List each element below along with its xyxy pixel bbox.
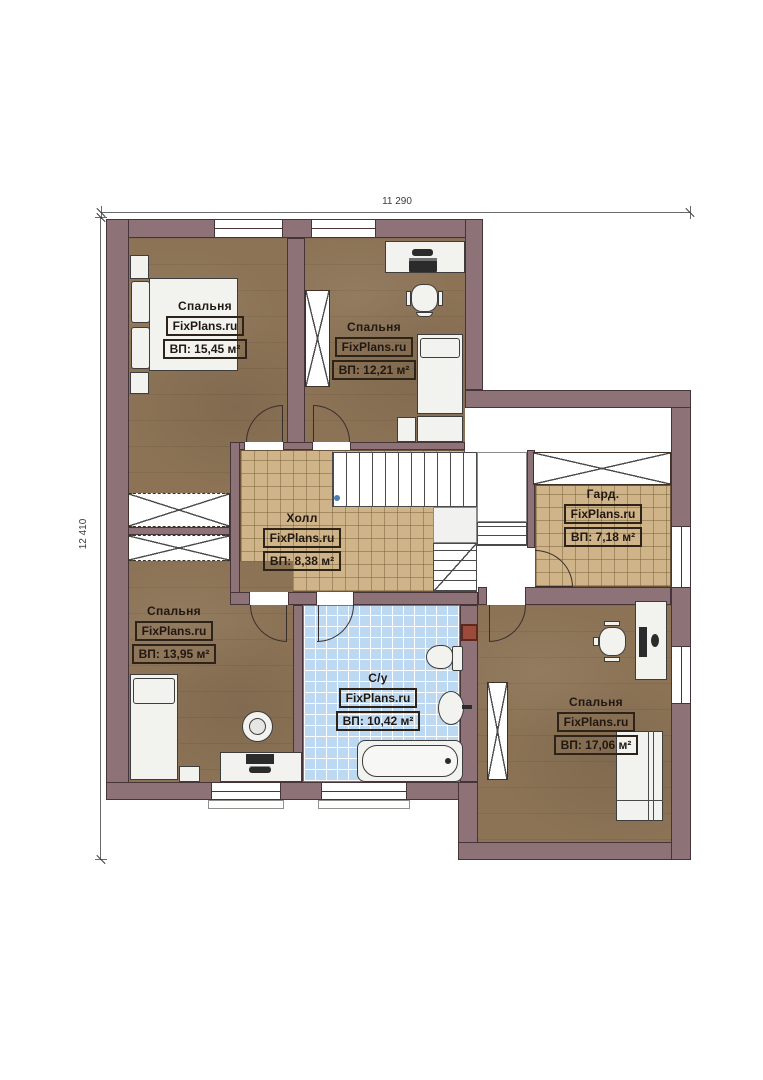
monitor-icon	[246, 754, 274, 764]
stairs-upper-flight	[332, 452, 477, 507]
vent-shaft-icon	[461, 624, 478, 641]
door-leaf	[313, 405, 314, 442]
room-area: ВП: 13,95 м²	[132, 644, 217, 664]
printer-icon	[412, 249, 433, 256]
room-area: ВП: 8,38 м²	[263, 551, 341, 571]
wall-segment	[671, 390, 691, 527]
office-chair-icon	[604, 621, 620, 626]
wall-segment	[288, 592, 317, 605]
door-leaf	[535, 586, 573, 587]
room-brand-watermark: FixPlans.ru	[557, 712, 636, 732]
door-opening	[317, 592, 353, 605]
office-chair-icon	[438, 291, 443, 306]
nightstand-icon	[397, 417, 416, 442]
room-label-bedroom-bottom-right: Спальня FixPlans.ru ВП: 17,06 м²	[536, 695, 656, 755]
wall-segment	[465, 390, 691, 408]
window	[671, 647, 691, 703]
wardrobe-x-icon	[128, 493, 230, 527]
room-brand-watermark: FixPlans.ru	[166, 316, 245, 336]
office-chair-icon	[599, 627, 626, 656]
room-brand-watermark: FixPlans.ru	[263, 528, 342, 548]
room-brand-watermark: FixPlans.ru	[339, 688, 418, 708]
nightstand-icon	[130, 372, 149, 394]
room-area: ВП: 7,18 м²	[564, 527, 642, 547]
stairs-mid-landing	[433, 507, 477, 543]
wall-segment	[128, 527, 230, 535]
room-brand-watermark: FixPlans.ru	[335, 337, 414, 357]
wall-segment	[106, 219, 129, 800]
room-name: Спальня	[147, 604, 201, 618]
sink-icon	[438, 691, 464, 725]
door-leaf	[489, 605, 490, 642]
room-name: Холл	[286, 511, 317, 525]
stool-icon	[249, 718, 266, 735]
office-chair-icon	[416, 312, 433, 317]
wardrobe-x-icon	[487, 682, 508, 780]
bed-chest-icon	[417, 416, 463, 442]
sink-icon	[462, 705, 472, 709]
room-area: ВП: 15,45 м²	[163, 339, 248, 359]
room-brand-watermark: FixPlans.ru	[135, 621, 214, 641]
room-area: ВП: 10,42 м²	[336, 711, 421, 731]
wall-segment	[230, 442, 240, 605]
door-opening	[245, 442, 283, 450]
window	[212, 782, 280, 800]
room-area: ВП: 17,06 м²	[554, 735, 639, 755]
room-name: Спальня	[347, 320, 401, 334]
wall-segment	[287, 238, 305, 450]
mouse-icon	[651, 634, 659, 647]
dimension-top-line	[101, 212, 691, 213]
window-sill	[208, 800, 284, 809]
wall-segment	[106, 782, 212, 800]
room-area: ВП: 12,21 м²	[332, 360, 417, 380]
window	[671, 527, 691, 587]
room-label-bedroom-bottom-left: Спальня FixPlans.ru ВП: 13,95 м²	[114, 604, 234, 664]
room-label-bathroom: С/у FixPlans.ru ВП: 10,42 м²	[318, 671, 438, 731]
room-name: С/у	[368, 671, 388, 685]
room-label-wardrobe: Гард. FixPlans.ru ВП: 7,18 м²	[543, 487, 663, 547]
wall-segment	[671, 703, 691, 860]
office-chair-icon	[593, 637, 599, 646]
door-leaf	[286, 605, 287, 642]
nightstand-icon	[130, 255, 149, 279]
office-chair-icon	[411, 284, 438, 312]
monitor-icon	[639, 627, 647, 657]
wall-segment	[458, 842, 691, 860]
floor-plan-canvas: 11 290 12 410	[0, 0, 763, 1080]
dimension-top-label: 11 290	[297, 196, 497, 208]
office-chair-icon	[406, 291, 411, 306]
keyboard-icon	[249, 766, 271, 773]
door-opening	[250, 592, 288, 605]
dimension-left-line	[100, 217, 101, 860]
window	[215, 219, 282, 238]
window	[312, 219, 375, 238]
room-name: Гард.	[587, 487, 620, 501]
printer-icon	[409, 258, 437, 272]
nightstand-icon	[179, 766, 200, 782]
wall-segment	[465, 219, 483, 390]
door-opening	[313, 442, 350, 450]
door-leaf	[282, 405, 283, 442]
toilet-icon	[426, 645, 453, 669]
stairs-lower-flight	[433, 543, 477, 592]
wall-segment	[671, 587, 691, 647]
room-brand-watermark: FixPlans.ru	[564, 504, 643, 524]
wall-segment	[478, 587, 487, 605]
sofa-icon	[616, 800, 663, 801]
pillow-icon	[133, 678, 175, 704]
wall-segment	[280, 782, 322, 800]
stairs-right-treads	[477, 522, 527, 546]
door-leaf	[318, 605, 319, 642]
door-opening	[487, 587, 525, 605]
room-name: Спальня	[569, 695, 623, 709]
wall-segment	[283, 442, 313, 450]
bathtub-drain-icon	[445, 758, 451, 764]
stairs-landing-right	[477, 452, 527, 522]
room-label-bedroom-top-middle: Спальня FixPlans.ru ВП: 12,21 м²	[314, 320, 434, 380]
wall-segment	[350, 442, 465, 450]
stairs-start-marker	[334, 495, 340, 501]
wall-segment	[353, 592, 478, 605]
dimension-left-label: 12 410	[78, 512, 90, 556]
room-label-bedroom-top-left: Спальня FixPlans.ru ВП: 15,45 м²	[145, 299, 265, 359]
window-sill	[318, 800, 410, 809]
wall-segment	[282, 219, 312, 238]
room-label-hall: Холл FixPlans.ru ВП: 8,38 м²	[242, 511, 362, 571]
window	[322, 782, 406, 800]
wall-segment	[406, 782, 460, 800]
wardrobe-x-icon	[533, 452, 671, 485]
office-chair-icon	[604, 657, 620, 662]
room-name: Спальня	[178, 299, 232, 313]
wardrobe-x-icon	[128, 535, 230, 561]
bathtub-icon	[362, 745, 458, 777]
toilet-icon	[452, 646, 463, 671]
door-opening	[527, 548, 535, 586]
